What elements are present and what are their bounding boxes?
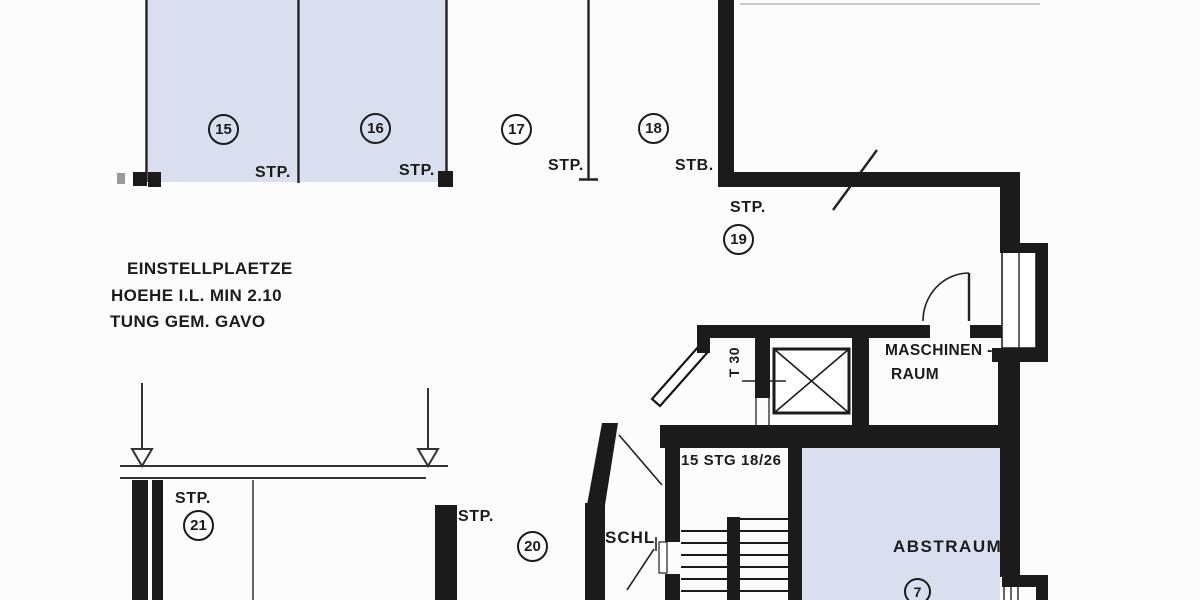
stall-circle-21: 21 (183, 510, 214, 541)
angled-wall-schl (587, 423, 618, 505)
door-swing-stair (619, 435, 662, 485)
faint-wall-mark (117, 173, 125, 184)
stall-circle-16: 16 (360, 113, 391, 144)
stall-circle-19: 19 (723, 224, 754, 255)
stall-number-20: 20 (524, 538, 541, 555)
stall-circle-18: 18 (638, 113, 669, 144)
room-label-schl: SCHL (605, 528, 655, 548)
room-number-7: 7 (914, 584, 922, 600)
room-circle-7: 7 (904, 578, 931, 600)
room-label-maschinenraum-1: MASCHINEN - (885, 342, 993, 360)
floor-plan: 15 16 17 18 19 20 21 7 STP. STP. STP. ST… (0, 0, 1200, 600)
stall-tag-17: STP. (548, 157, 584, 175)
wall-t30-hinge-stub (697, 338, 710, 353)
wall-stall21-left-outer (132, 480, 148, 600)
wall-stair-left-lower (665, 574, 680, 600)
stall-number-21: 21 (190, 517, 207, 534)
wall-stub-stall15-left (133, 172, 147, 186)
wall-niche-right (1036, 243, 1048, 362)
wall-right-upper (1000, 172, 1020, 253)
note-einstellplaetze: EINSTELLPLAETZE (127, 259, 293, 279)
stall-number-18: 18 (645, 120, 662, 137)
wall-abstraum-right (1000, 443, 1020, 577)
room-label-abstraum: ABSTRAUM (893, 537, 1002, 557)
note-lueftung: TUNG GEM. GAVO (110, 312, 265, 332)
wall-schl-left (585, 503, 605, 600)
stall-number-16: 16 (367, 120, 384, 137)
room-label-maschinenraum-2: RAUM (891, 366, 939, 384)
wall-stair-left-upper (665, 430, 680, 542)
stair-newel-wall (727, 517, 740, 600)
wall-stall21-left-inner (152, 480, 163, 600)
stall-tag-21: STP. (175, 490, 211, 508)
stall-circle-20: 20 (517, 531, 548, 562)
stall-tag-16: STP. (399, 162, 435, 180)
wall-bottom-right-vertical (1036, 575, 1048, 600)
wall-niche-bottom-step (992, 348, 1048, 362)
stall-tag-20: STP. (458, 508, 494, 526)
wall-stall20-left (435, 505, 457, 600)
stall-tag-19: STP. (730, 199, 766, 217)
wall-elevator-left (755, 335, 770, 398)
stall-circle-17: 17 (501, 114, 532, 145)
wall-top-right-vertical (718, 0, 734, 187)
door-label-t30: T 30 (726, 337, 742, 387)
wall-machine-row-top-right (970, 325, 1002, 338)
note-hoehe: HOEHE I.L. MIN 2.10 (111, 286, 282, 306)
stair-label: 15 STG 18/26 (681, 452, 782, 469)
wall-stair-row-top (660, 425, 1020, 448)
stall-tag-18: STB. (675, 157, 714, 175)
wall-stub-stall16 (438, 171, 453, 187)
wall-stair-right (788, 442, 802, 600)
door-swing-maschinenraum (923, 273, 969, 321)
door-t30-leaf (652, 346, 707, 406)
stall-number-15: 15 (215, 121, 232, 138)
stall-circle-15: 15 (208, 114, 239, 145)
window-niche (1002, 252, 1036, 348)
stall-divider-lines (147, 0, 599, 183)
stall-number-17: 17 (508, 121, 525, 138)
parking-row-edge-lines (120, 466, 448, 600)
wall-stub-stall15-right (148, 172, 161, 187)
wall-top-right-horizontal (718, 172, 1014, 187)
bottom-right-opening-lines (1004, 587, 1018, 600)
stall-number-19: 19 (730, 231, 747, 248)
section-arrows (132, 383, 438, 466)
stall-tag-15: STP. (255, 164, 291, 182)
